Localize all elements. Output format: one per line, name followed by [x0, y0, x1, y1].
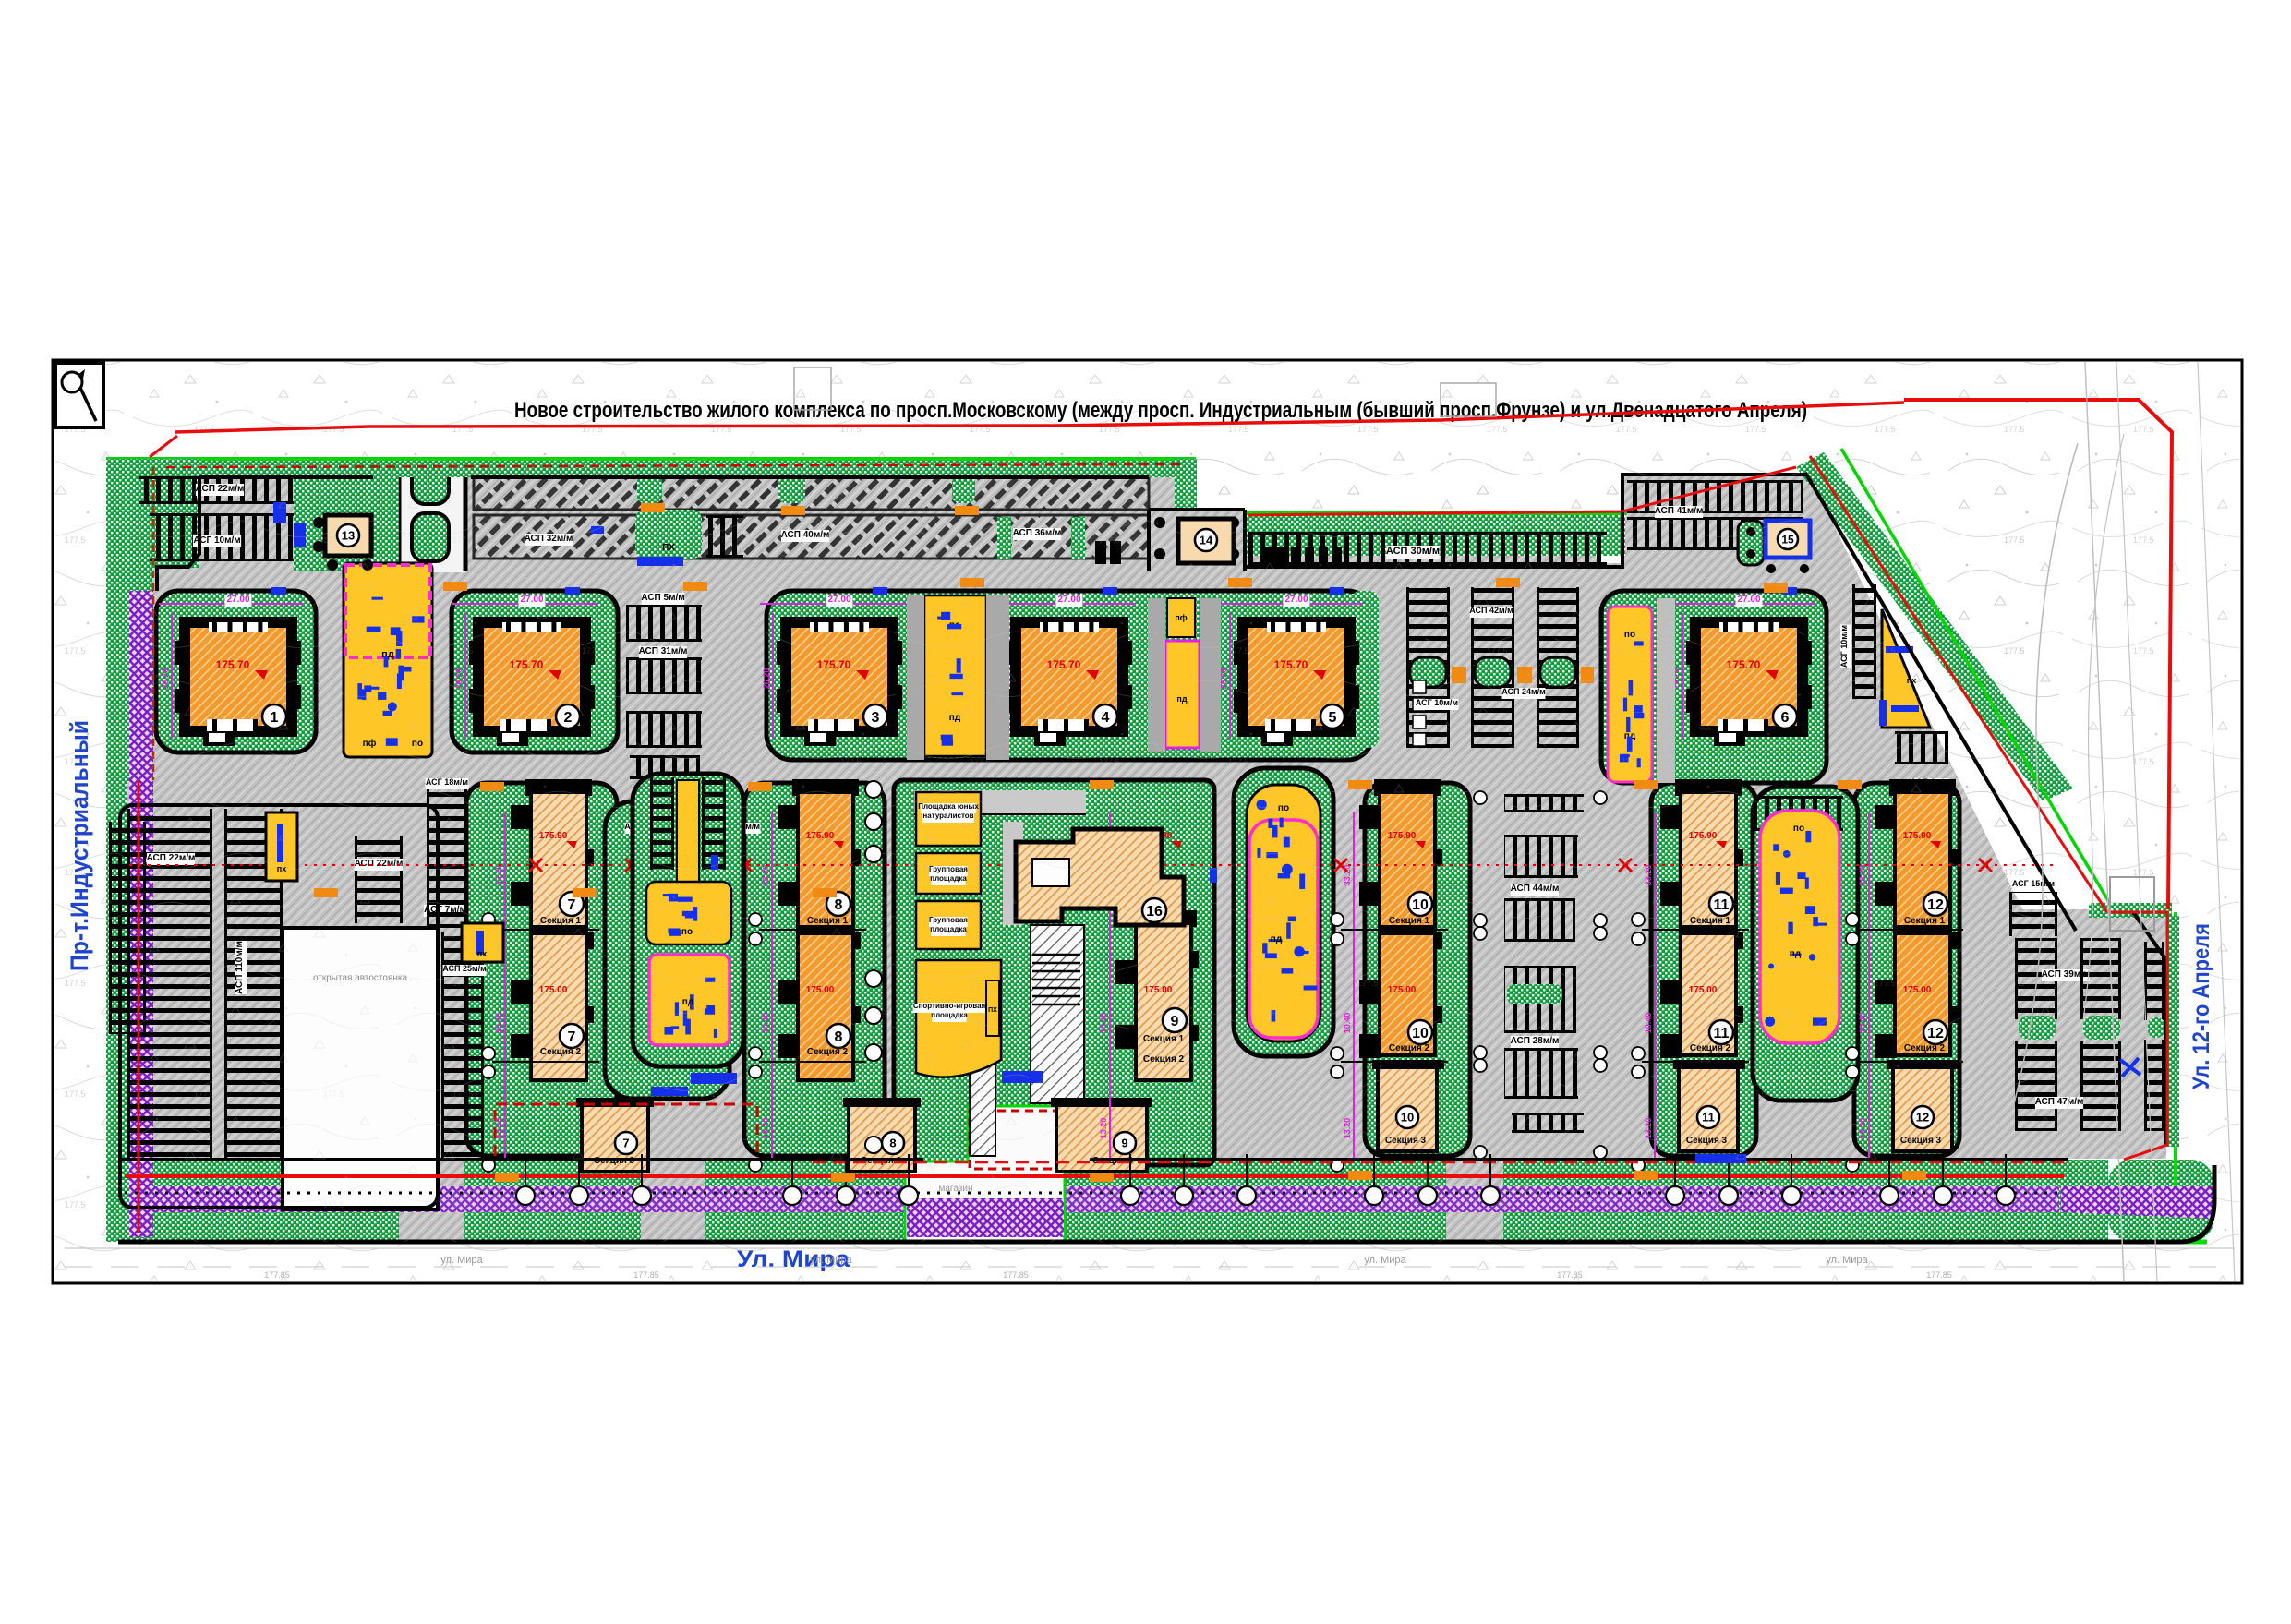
- svg-text:Ул. 12-го Апреля: Ул. 12-го Апреля: [2189, 923, 2214, 1089]
- svg-text:177.85: 177.85: [264, 1270, 290, 1280]
- svg-text:177.85: 177.85: [633, 1270, 659, 1280]
- svg-text:177.85: 177.85: [1926, 1270, 1952, 1280]
- svg-text:Новое строительство жилого ком: Новое строительство жилого комплекса по …: [514, 398, 1807, 423]
- svg-text:Пр-т.Индустриальный: Пр-т.Индустриальный: [66, 720, 93, 971]
- svg-text:ул. Мира: ул. Мира: [1364, 1255, 1406, 1266]
- svg-text:ул. Мира: ул. Мира: [440, 1255, 483, 1266]
- svg-text:ул. Мира: ул. Мира: [810, 1255, 852, 1266]
- svg-text:ул. Мира: ул. Мира: [1826, 1255, 1868, 1266]
- svg-text:177.85: 177.85: [1557, 1270, 1583, 1280]
- svg-text:177.85: 177.85: [1003, 1270, 1029, 1280]
